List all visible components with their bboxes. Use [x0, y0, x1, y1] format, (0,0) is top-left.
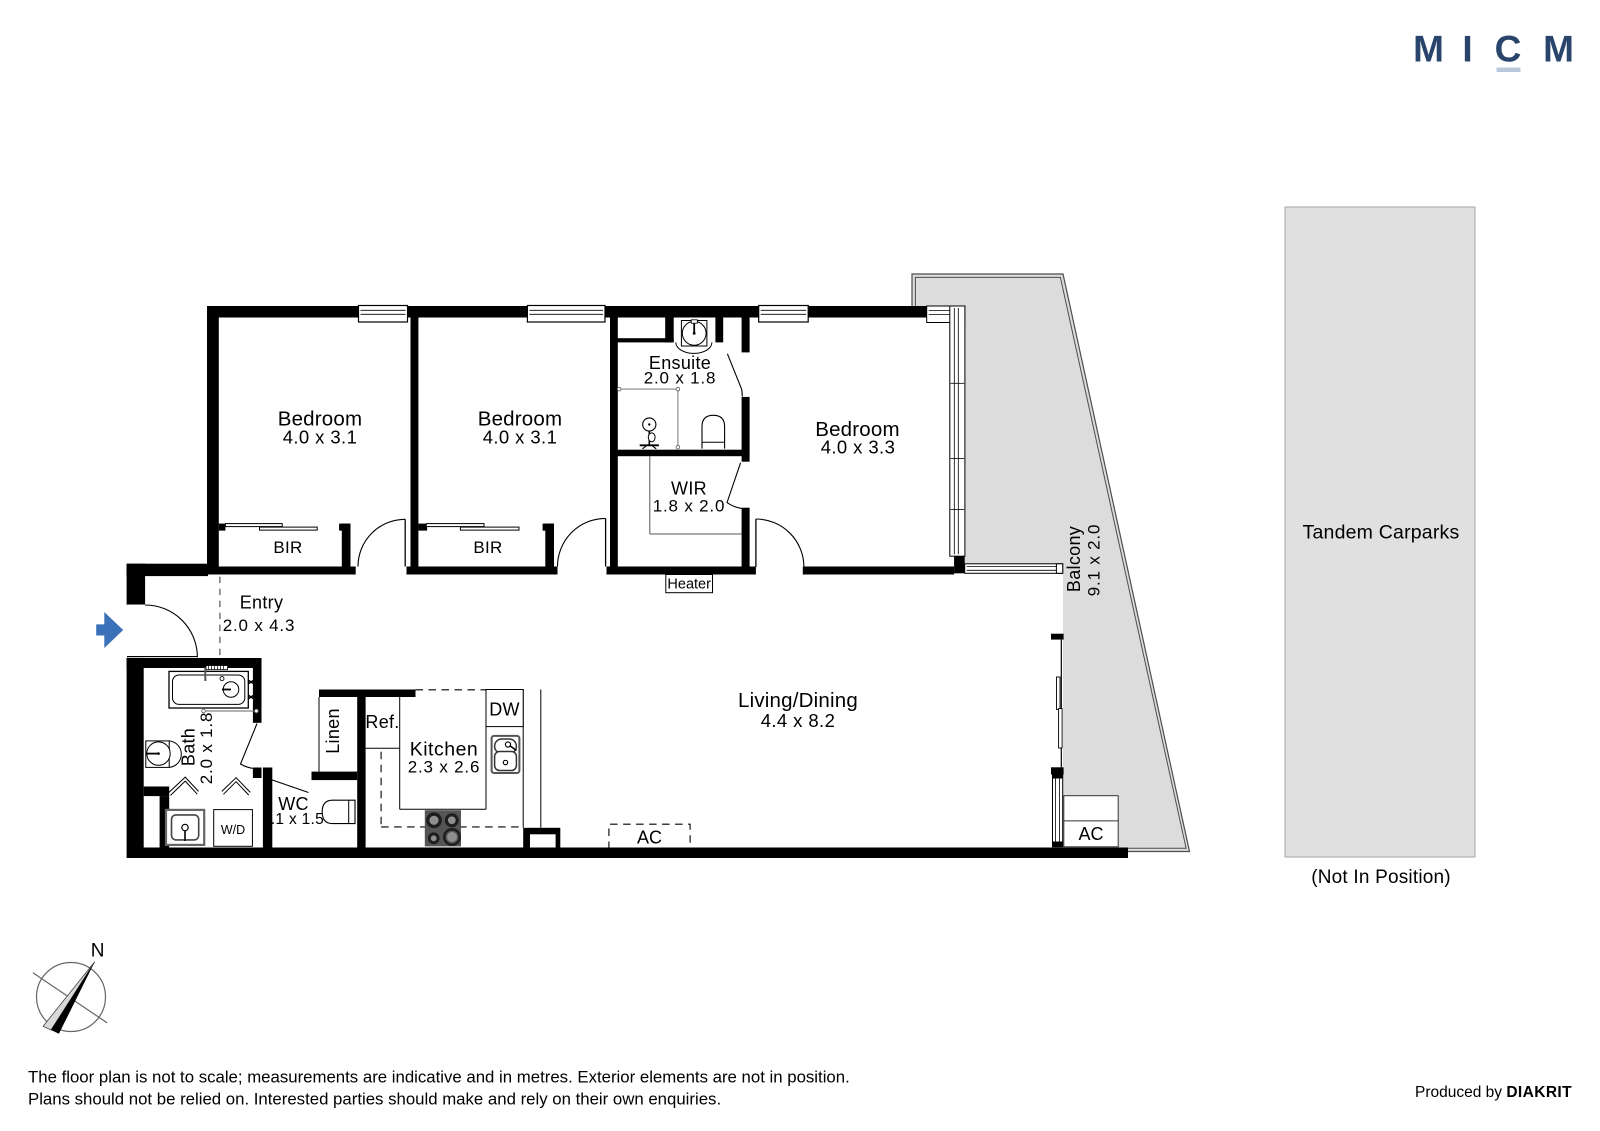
svg-text:Tandem Carparks: Tandem Carparks [1303, 522, 1460, 544]
svg-text:AC: AC [637, 828, 662, 848]
svg-text:4.0 x 3.1: 4.0 x 3.1 [483, 427, 558, 448]
svg-text:Living/Dining: Living/Dining [738, 689, 858, 712]
svg-text:BIR: BIR [273, 538, 302, 557]
svg-text:Produced by DIAKRIT: Produced by DIAKRIT [1415, 1084, 1572, 1101]
svg-text:(Not In Position): (Not In Position) [1311, 867, 1451, 888]
svg-text:I: I [1462, 29, 1472, 70]
svg-text:Plans should not be relied on.: Plans should not be relied on. Intereste… [28, 1090, 721, 1109]
svg-text:C: C [1495, 29, 1522, 70]
svg-text:1.1 x 1.5: 1.1 x 1.5 [262, 811, 324, 828]
svg-text:1.8 x 2.0: 1.8 x 2.0 [653, 497, 725, 516]
svg-text:2.0 x 4.3: 2.0 x 4.3 [223, 616, 295, 635]
svg-text:Bath: Bath [179, 728, 199, 766]
svg-text:9.1 x 2.0: 9.1 x 2.0 [1085, 524, 1104, 596]
svg-text:Linen: Linen [323, 708, 343, 754]
svg-text:4.0 x 3.3: 4.0 x 3.3 [821, 437, 896, 458]
svg-text:2.0 x 1.8: 2.0 x 1.8 [644, 369, 716, 388]
svg-text:4.0 x 3.1: 4.0 x 3.1 [283, 427, 358, 448]
svg-text:AC: AC [1078, 824, 1103, 844]
svg-text:N: N [91, 941, 105, 962]
svg-text:2.3 x 2.6: 2.3 x 2.6 [408, 758, 480, 777]
svg-text:Balcony: Balcony [1064, 526, 1084, 592]
svg-text:2.0 x 1.8: 2.0 x 1.8 [197, 712, 216, 784]
svg-text:BIR: BIR [473, 538, 502, 557]
svg-text:W/D: W/D [221, 823, 245, 837]
svg-text:M: M [1413, 29, 1444, 70]
svg-text:The floor plan is not to scale: The floor plan is not to scale; measurem… [28, 1068, 850, 1087]
svg-text:Heater: Heater [667, 577, 711, 593]
svg-text:DW: DW [489, 700, 520, 720]
svg-text:WIR: WIR [671, 479, 707, 499]
svg-text:Entry: Entry [240, 593, 284, 613]
svg-text:M: M [1543, 29, 1574, 70]
svg-text:4.4 x 8.2: 4.4 x 8.2 [761, 710, 836, 731]
svg-text:Ref.: Ref. [365, 712, 399, 732]
